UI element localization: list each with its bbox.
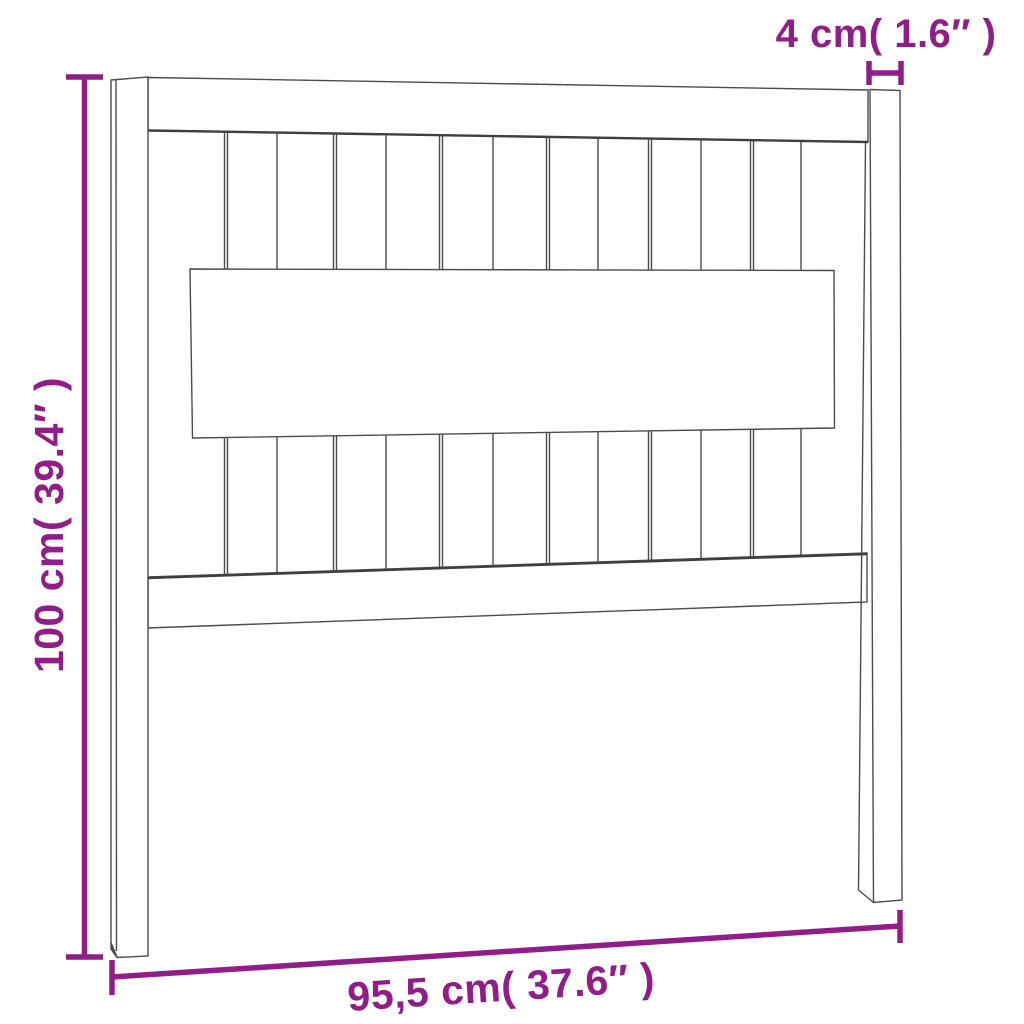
center-panel bbox=[190, 269, 835, 438]
right-post-bottom-bevel bbox=[859, 890, 874, 903]
left-post-side-edge bbox=[116, 80, 117, 952]
thickness-dimension-label: 4 cm( 1.6″ ) bbox=[776, 12, 997, 56]
bottom-rail bbox=[148, 553, 867, 628]
width-dimension-label: 95,5 cm( 37.6″ ) bbox=[346, 954, 656, 1020]
dimension-annotations: 100 cm( 39.4″ ) 4 cm( 1.6″ ) 95,5 cm( 37… bbox=[26, 12, 996, 1020]
headboard-dimension-diagram: 100 cm( 39.4″ ) 4 cm( 1.6″ ) 95,5 cm( 37… bbox=[0, 0, 1024, 1024]
height-dimension: 100 cm( 39.4″ ) bbox=[26, 77, 103, 957]
right-post-side-edge bbox=[859, 143, 866, 890]
width-dimension: 95,5 cm( 37.6″ ) bbox=[112, 910, 900, 1020]
height-dimension-label: 100 cm( 39.4″ ) bbox=[26, 377, 72, 673]
right-post bbox=[870, 90, 902, 903]
thickness-dimension: 4 cm( 1.6″ ) bbox=[776, 12, 997, 85]
headboard-drawing bbox=[111, 77, 902, 958]
diagram-canvas: 100 cm( 39.4″ ) 4 cm( 1.6″ ) 95,5 cm( 37… bbox=[0, 0, 1024, 1024]
